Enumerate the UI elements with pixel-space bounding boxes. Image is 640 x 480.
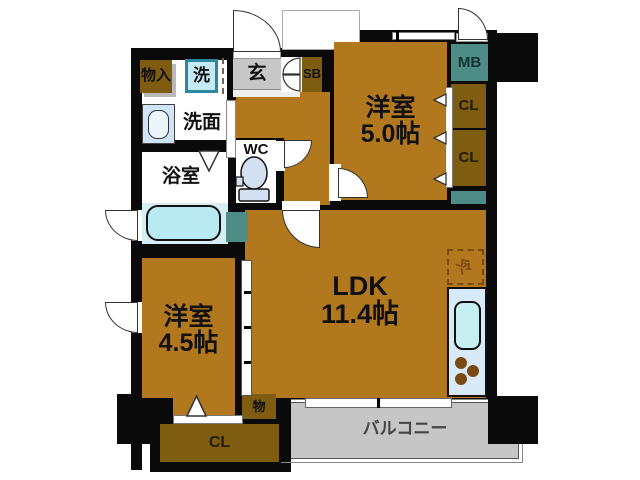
closet-right-top-label: CL (451, 84, 486, 128)
balcony-window-tick (377, 398, 380, 408)
toilet-icon (235, 153, 273, 203)
closet-bottom-track (173, 415, 243, 424)
entry-label: 玄 (233, 57, 281, 90)
closet-bottom-label: CL (160, 424, 279, 462)
balcony-label: バルコニー (340, 415, 470, 443)
washer-label: 洗 (185, 60, 218, 92)
bedroom-top-window (392, 32, 455, 40)
bathtub (146, 205, 221, 241)
storage-small-label: 物 (242, 394, 276, 419)
mb-door-swing (458, 8, 488, 40)
shoe-box-label: SB (303, 57, 321, 92)
shoe-double-door-icon (281, 57, 302, 92)
stove-burner-1 (455, 357, 467, 369)
bedroom-top-label: 洋室5.0帖 (334, 84, 447, 158)
window-tick-top (396, 31, 399, 41)
bath-label: 浴室 (147, 163, 215, 191)
stove-burner-2 (467, 365, 479, 377)
kitchen-sink (454, 301, 481, 350)
sliding-door-tick-2 (244, 326, 251, 329)
bedroom-left-window-swing (105, 302, 138, 333)
hall-floor-upper (236, 92, 330, 138)
shoe-door-box (281, 57, 302, 92)
washroom-label: 洗面 (174, 110, 230, 136)
sliding-door-tick-3 (244, 361, 251, 364)
floor-plan: 洋室5.0帖 LDK11.4帖 洋室4.5帖 浴室 洗面 洗 物入 玄 SB M… (0, 0, 640, 480)
entry-door-swing (233, 10, 281, 52)
closet-bottom-folding-icon (185, 394, 208, 418)
pipe-space-right (451, 191, 486, 204)
pipe-space-ldk (226, 212, 248, 242)
sliding-door-tick-1 (244, 291, 251, 294)
bedroom-left-label: 洋室4.5帖 (142, 290, 235, 370)
washbasin-bowl (148, 110, 169, 139)
stove-burner-3 (455, 373, 467, 385)
wc-label: WC (236, 140, 276, 160)
meter-box-label: MB (451, 44, 488, 81)
washer-partition-dashed (222, 58, 224, 94)
washbasin (142, 104, 175, 144)
closet-right-folding-icon-3 (432, 171, 448, 187)
closet-right-bottom-label: CL (451, 130, 486, 186)
ldk-label: LDK11.4帖 (265, 255, 455, 345)
bath-window-swing (105, 210, 138, 241)
pillar-bottom-right-2 (488, 397, 538, 444)
storage-hall-label: 物入 (139, 61, 173, 91)
